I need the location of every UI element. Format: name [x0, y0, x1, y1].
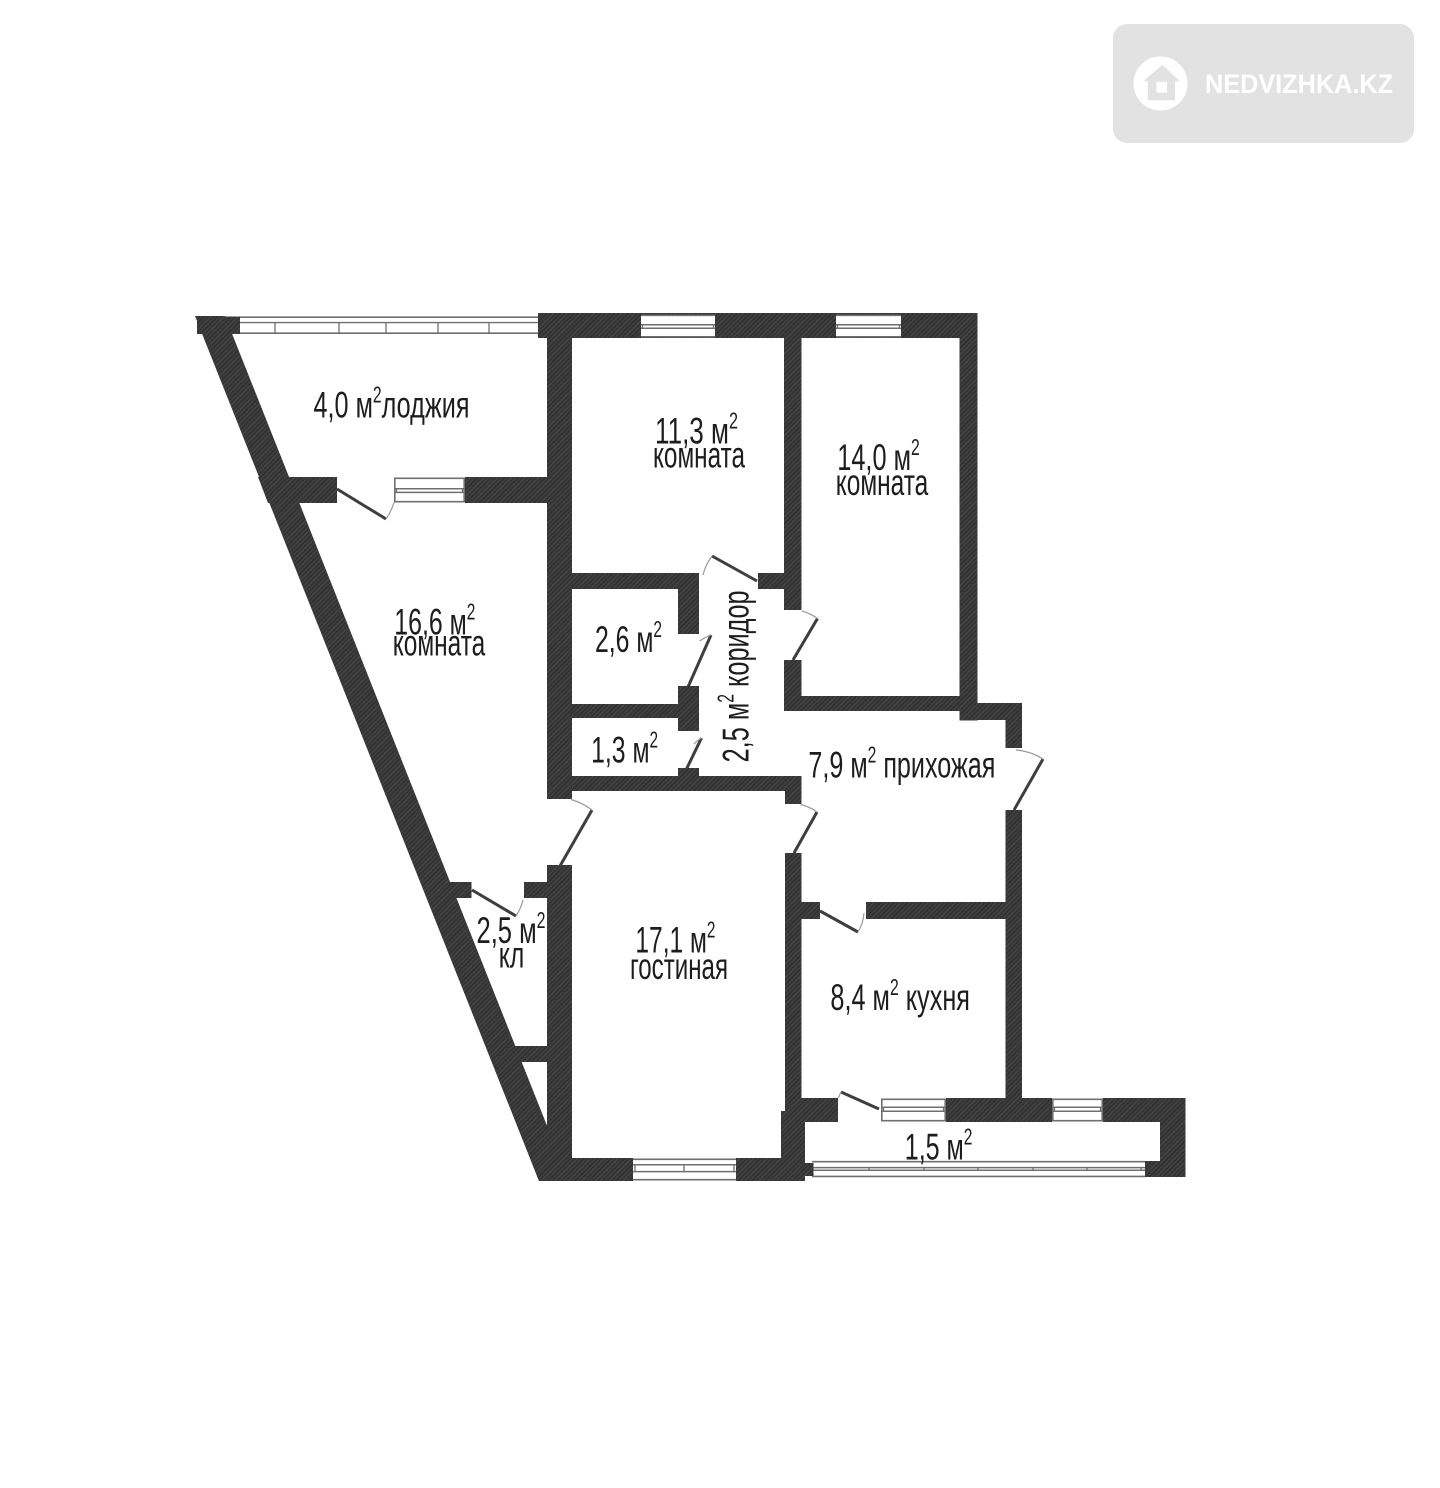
svg-text:комната: комната: [836, 462, 929, 503]
svg-text:4,0 м2лоджия: 4,0 м2лоджия: [314, 382, 470, 426]
svg-text:комната: комната: [653, 435, 745, 476]
svg-text:2,6 м2: 2,6 м2: [595, 616, 662, 660]
svg-text:8,4 м2 кухня: 8,4 м2 кухня: [830, 974, 970, 1018]
svg-text:7,9 м2 прихожая: 7,9 м2 прихожая: [808, 741, 995, 785]
svg-text:NEDVIZHKA.KZ: NEDVIZHKA.KZ: [1205, 69, 1393, 99]
svg-text:кл: кл: [499, 935, 525, 976]
svg-text:гостиная: гостиная: [630, 946, 728, 987]
svg-text:комната: комната: [393, 623, 486, 664]
svg-text:1,3 м2: 1,3 м2: [591, 726, 658, 770]
svg-text:1,5 м2: 1,5 м2: [905, 1124, 973, 1168]
svg-text:2,5 м2 коридор: 2,5 м2 коридор: [713, 590, 757, 762]
